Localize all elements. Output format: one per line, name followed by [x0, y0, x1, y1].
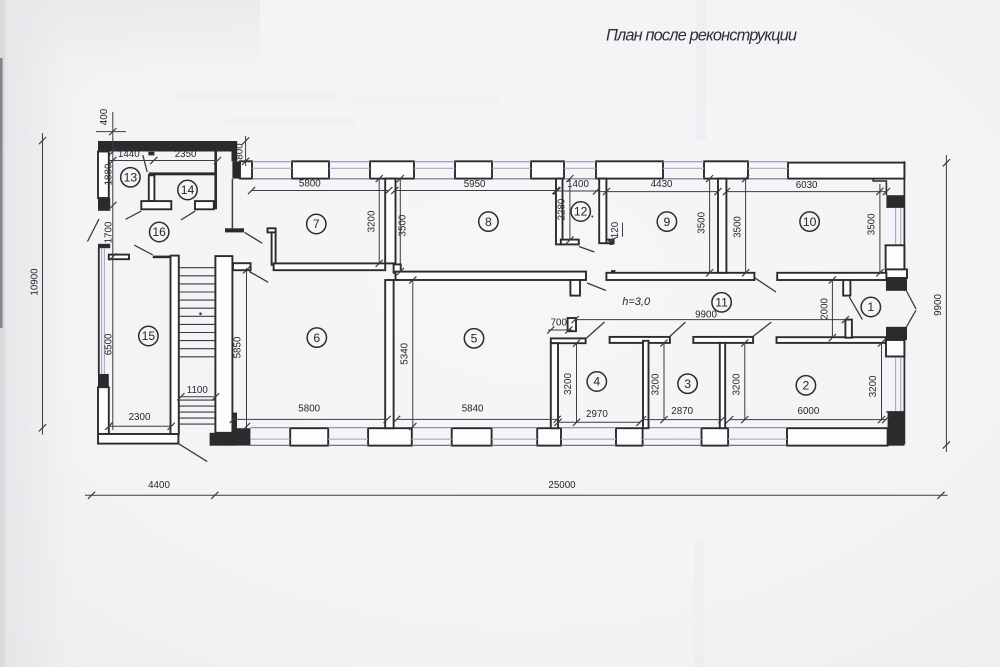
- svg-text:3200: 3200: [366, 210, 377, 232]
- svg-text:14: 14: [181, 183, 195, 197]
- svg-text:7: 7: [313, 217, 320, 231]
- svg-text:10900: 10900: [30, 268, 41, 296]
- svg-text:3200: 3200: [868, 375, 879, 397]
- svg-text:400: 400: [99, 108, 110, 125]
- svg-text:6500: 6500: [104, 333, 115, 355]
- svg-text:1700: 1700: [104, 221, 115, 243]
- svg-text:12: 12: [574, 205, 588, 219]
- svg-text:1100: 1100: [187, 385, 209, 396]
- svg-text:3500: 3500: [397, 214, 408, 236]
- svg-text:3200: 3200: [563, 373, 574, 395]
- svg-text:2350: 2350: [175, 149, 197, 160]
- svg-text:3200: 3200: [732, 373, 743, 395]
- svg-text:2970: 2970: [586, 409, 608, 420]
- svg-text:h=3,0: h=3,0: [622, 296, 651, 308]
- svg-text:2280: 2280: [557, 198, 568, 220]
- svg-text:5800: 5800: [298, 404, 320, 415]
- svg-text:1880: 1880: [104, 163, 115, 185]
- svg-text:11: 11: [715, 296, 728, 310]
- svg-text:13: 13: [124, 171, 138, 185]
- svg-text:План после реконструкции: План после реконструкции: [606, 27, 797, 45]
- svg-text:9900: 9900: [695, 310, 717, 321]
- svg-text:2: 2: [803, 379, 810, 393]
- svg-text:5800: 5800: [299, 179, 321, 190]
- svg-text:8: 8: [485, 215, 492, 229]
- svg-text:4400: 4400: [148, 480, 170, 491]
- svg-text:3500: 3500: [697, 211, 708, 233]
- svg-text:15: 15: [142, 329, 156, 343]
- svg-text:5: 5: [471, 332, 478, 346]
- svg-text:5850: 5850: [233, 336, 244, 358]
- svg-text:10: 10: [803, 215, 817, 229]
- svg-text:2870: 2870: [671, 406, 693, 417]
- svg-text:1400: 1400: [567, 179, 589, 190]
- svg-text:700: 700: [551, 318, 568, 329]
- svg-text:16: 16: [152, 225, 166, 239]
- svg-text:4: 4: [593, 375, 600, 389]
- svg-text:3500: 3500: [733, 216, 744, 238]
- svg-text:1440: 1440: [118, 149, 140, 160]
- svg-text:5340: 5340: [399, 342, 410, 364]
- svg-text:3500: 3500: [867, 213, 878, 235]
- svg-text:3: 3: [684, 377, 691, 391]
- svg-text:2300: 2300: [129, 412, 151, 423]
- svg-text:9900: 9900: [933, 294, 944, 316]
- svg-text:1: 1: [867, 300, 874, 314]
- svg-text:5840: 5840: [462, 404, 484, 415]
- svg-text:6000: 6000: [798, 406, 820, 417]
- svg-text:3200: 3200: [651, 373, 662, 395]
- svg-text:6: 6: [313, 331, 320, 345]
- svg-text:4430: 4430: [651, 179, 673, 190]
- svg-text:2000: 2000: [819, 297, 830, 319]
- svg-text:6030: 6030: [796, 180, 818, 191]
- svg-text:800: 800: [235, 143, 246, 160]
- svg-text:120: 120: [610, 221, 621, 238]
- svg-text:25000: 25000: [548, 480, 576, 491]
- svg-text:9: 9: [664, 215, 671, 229]
- svg-text:5950: 5950: [464, 179, 486, 190]
